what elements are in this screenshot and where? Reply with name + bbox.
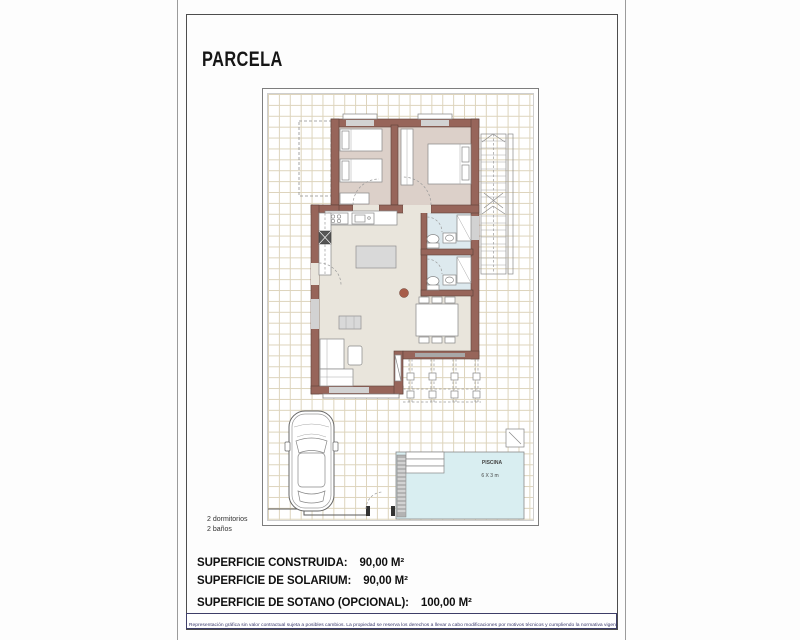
pool-size-label: 6 X 3 m (481, 473, 498, 479)
dining-set (416, 297, 458, 343)
gate-post (391, 506, 395, 516)
pergola (403, 359, 481, 402)
overhang-dashed-outline (299, 121, 331, 196)
site-plan: PISCINA 6 X 3 m (263, 89, 538, 525)
surface-value: 90,00 M² (363, 575, 408, 587)
page-edge-right (625, 0, 626, 640)
car-mirror (333, 442, 338, 451)
plot-area: PISCINA 6 X 3 m (262, 88, 539, 526)
page-edge-left (177, 0, 178, 640)
surface-label: SUPERFICIE DE SOTANO (OPCIONAL): (197, 597, 409, 609)
surface-value: 90,00 M² (360, 557, 405, 569)
surface-row-sotano: SUPERFICIE DE SOTANO (OPCIONAL): 100,00 … (197, 597, 472, 609)
pool-step (406, 466, 444, 473)
pool-step (406, 452, 444, 459)
car-mirror (285, 442, 290, 451)
pool-step (406, 459, 444, 466)
car-top-view-icon (285, 411, 338, 511)
surface-label: SUPERFICIE DE SOLARIUM: (197, 575, 351, 587)
surface-row-construida: SUPERFICIE CONSTRUIDA: 90,00 M² (197, 557, 404, 569)
corner-drain (506, 429, 524, 447)
plan-notes: 2 dormitorios 2 baños (207, 515, 247, 535)
staircase (481, 134, 513, 274)
disclaimer-text: Representación gráfica sin valor contrac… (187, 620, 617, 629)
surface-row-solarium: SUPERFICIE DE SOLARIUM: 90,00 M² (197, 575, 408, 587)
parcela-sheet: PARCELA (0, 0, 800, 640)
surface-value: 100,00 M² (421, 597, 472, 609)
surface-label: SUPERFICIE CONSTRUIDA: (197, 557, 348, 569)
pool-label: PISCINA (482, 460, 503, 466)
page-title: PARCELA (202, 48, 283, 72)
swimming-pool: PISCINA 6 X 3 m (396, 452, 524, 519)
disclaimer-bar: Representación gráfica sin valor contrac… (186, 613, 617, 629)
column-dot (400, 289, 409, 298)
entrance-step (323, 394, 399, 398)
pool-ladder-strip (397, 455, 406, 517)
bedrooms-note: 2 dormitorios (207, 515, 247, 525)
front-door (395, 355, 401, 381)
bathrooms-note: 2 baños (207, 525, 247, 535)
gate-post (366, 506, 370, 516)
